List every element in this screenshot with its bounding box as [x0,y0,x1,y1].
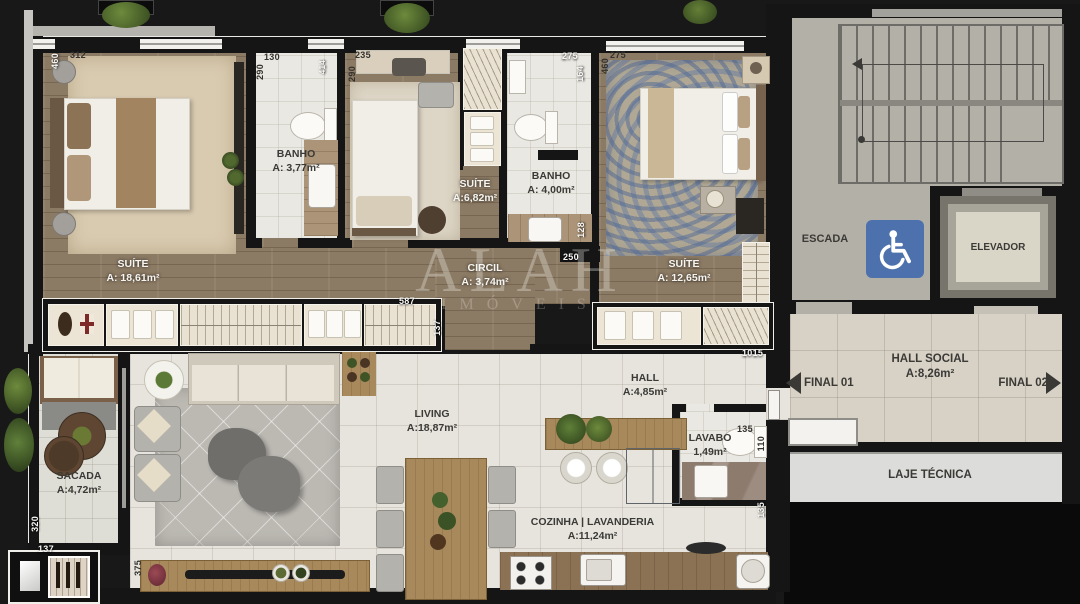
outside-left-strip [24,10,33,352]
suite3-label: SUÍTE A: 12,65m² [634,258,734,285]
dimension-label: 137 [38,544,54,554]
dimension-label: 135 [756,502,766,518]
final01-label: FINAL 01 [804,376,874,391]
room-name: ELEVADOR [956,241,1040,254]
escada-door-opening [796,302,852,314]
room-area: A: 3,74m² [435,276,535,290]
plant-icon [556,414,586,444]
final02-arrow-icon [1046,372,1061,394]
folded-clothes [133,310,152,339]
room-area: A: 3,77m² [256,162,336,176]
room-name: HALL SOCIAL [850,352,1010,367]
escada-label: ESCADA [790,232,860,246]
sofa-cushions [192,365,334,401]
room-name: SUÍTE [78,258,188,272]
laundry-tank-basin [741,559,765,583]
room-name: SACADA [40,470,118,484]
cooktop [510,556,552,590]
window [308,39,344,49]
plant-icon [4,418,34,472]
wardrobe-hanging [742,242,770,304]
room-area: A:6,82m² [438,192,512,206]
dimension-label: 110 [756,436,766,451]
plant-icon [4,368,32,414]
room-name: LIVING [385,408,479,422]
tech-box-glass [20,561,40,591]
bed-pillow [722,92,738,132]
cozinha-label: COZINHA | LAVANDERIA A:11,24m² [505,516,680,543]
dimension-label: 460 [50,53,60,69]
sink [694,465,728,498]
dining-decor [432,492,448,508]
folded-clothes [470,116,494,130]
window [33,39,55,49]
room-area: A:4,85m² [595,386,695,400]
folded-clothes [604,311,626,340]
folded-clothes [326,310,343,338]
room-area: A: 12,65m² [634,272,734,286]
wheelchair-icon [866,220,924,278]
entry-door-leaf [768,390,780,420]
bed-pillow [722,134,738,174]
dimension-label: 587 [399,296,415,306]
toilet-tank [324,108,337,142]
bed-headboard [756,85,766,181]
plant-icon [586,416,612,442]
kitchen-sink-basin [586,559,612,581]
room-area: A:11,24m² [505,530,680,544]
closet-hanging [364,304,436,346]
dimension-label: 375 [133,560,143,576]
toilet [514,114,548,141]
dimension-label: 275 [562,51,578,61]
folded-clothes [155,310,174,339]
folded-clothes [470,148,494,162]
room-name: BANHO [516,170,586,184]
wall [337,46,345,244]
floor-plan: SUÍTE A: 18,61m² BANHO A: 3,77m² SUÍTE A… [0,0,1080,604]
laje-tecnica-label: LAJE TÉCNICA [850,468,1010,483]
dimension-label: 1015 [742,348,763,358]
room-area: A:18,87m² [385,422,479,436]
bed-headboard [50,98,64,208]
dimension-label: 128 [576,222,586,238]
door-opening [686,404,714,412]
room-area: 1,49m² [682,446,738,460]
side-table-decor [347,358,357,368]
ac-condenser-bars [76,562,80,588]
toilet [290,112,326,140]
dining-decor [430,534,446,550]
final01-arrow-icon [786,372,801,394]
living-label: LIVING A:18,87m² [385,408,479,435]
lavabo-label: LAVABO 1,49m² [682,432,738,459]
dimension-label: 414 [318,60,327,74]
dimension-label: 135 [737,424,753,434]
ac-condenser-bars [66,562,70,588]
closet-decor [58,312,72,336]
circul-label: CIRCIL A: 3,74m² [435,262,535,289]
nightstand [52,212,76,236]
room-name: COZINHA | LAVANDERIA [505,516,680,530]
console-decor [148,564,166,586]
bed-pillow [67,103,91,149]
folded-clothes [632,311,654,340]
tech-box [8,550,100,604]
bed-pillow [356,196,412,226]
table-lamp-icon [706,190,724,208]
stair-start-dot [858,136,865,143]
room-name: SUÍTE [634,258,734,272]
final-label: FINAL 02 [978,376,1048,391]
side-table-decor [360,372,370,382]
folded-clothes [660,311,682,340]
fridge [626,448,680,504]
pouf [418,206,446,234]
final-label: FINAL 01 [804,376,874,391]
dining-decor [438,512,456,530]
staircase [838,24,1064,184]
plant-icon [683,0,717,24]
window [140,39,222,49]
dimension-label: 460 [600,58,610,74]
room-name: LAJE TÉCNICA [850,468,1010,483]
wall [780,313,790,365]
dimension-label: 137 [432,320,442,336]
final02-label: FINAL 02 [978,376,1048,391]
armchair [418,82,454,108]
tv [185,570,345,579]
stair-direction-arrow [852,58,862,70]
bed-headboard [352,228,416,236]
plant-icon [222,152,239,169]
wardrobe-hanging [463,48,502,110]
folded-clothes [111,310,130,339]
side-table-decor [360,358,370,368]
island-sink [560,452,592,484]
bed-pillow [738,96,750,128]
dining-chair [376,554,404,592]
console-plate [272,564,290,582]
outside-top-right-strip [872,9,1068,17]
folded-clothes [344,310,361,338]
stair-guide-line [862,64,1044,142]
sacada-label: SACADA A:4,72m² [40,470,118,497]
closet-bench [48,304,104,346]
room-area: A: 18,61m² [78,272,188,286]
desk-chair [392,58,426,76]
dimension-label: 290 [255,64,265,80]
dining-chair [376,510,404,548]
room-name: ESCADA [790,232,860,246]
below-laje-void [784,502,1080,604]
round-flower-table [144,360,184,400]
closet-hanging [703,307,769,345]
wall [591,46,599,308]
side-table-decor [347,372,357,382]
dimension-label: 320 [30,516,40,532]
suite1-label: SUÍTE A: 18,61m² [78,258,188,285]
room-name: CIRCIL [435,262,535,276]
counter-decor [686,542,726,554]
towel-shelf [509,60,526,94]
sink [528,217,562,242]
tv-panel [234,62,244,234]
room-name: BANHO [256,148,336,162]
banho2-label: BANHO A: 4,00m² [516,170,586,197]
circul-floor [435,238,535,350]
room-area: A:4,72m² [40,484,118,498]
plant-icon [102,2,150,28]
room-name: SUÍTE [438,178,512,192]
console-plate [292,564,310,582]
dimension-label: 250 [563,252,579,262]
folded-clothes [308,310,325,338]
dimension-label: 235 [355,50,371,60]
dining-chair [376,466,404,504]
window [606,41,744,51]
coffee-table [238,456,300,512]
bed-runner [116,98,156,208]
hall-social-door-panel [788,418,858,446]
dimension-label: 164 [575,66,585,82]
banho1-label: BANHO A: 3,77m² [256,148,336,175]
toilet-tank [545,111,558,144]
closet-hanging [180,304,302,346]
room-name: LAVABO [682,432,738,446]
door-opening [262,238,298,248]
plant-icon [227,169,244,186]
sacada-living-glass [122,368,126,508]
bed-runner [648,88,674,178]
dimension-label: 130 [264,52,280,62]
wall [538,150,578,160]
elevador-label: ELEVADOR [956,241,1040,254]
room-area: A: 4,00m² [516,184,586,198]
nightstand-knob [750,62,762,74]
dining-chair [488,466,516,504]
bed-pillow [67,155,91,201]
folded-clothes [470,132,494,146]
island-sink [596,452,628,484]
dimension-label: 312 [70,50,86,60]
room-name: HALL [595,372,695,386]
dimension-label: 290 [347,66,357,82]
dimension-label: 275 [610,50,626,60]
hall-label: HALL A:4,85m² [595,372,695,399]
tv-console [736,198,764,234]
closet-decor [80,314,94,334]
sacada-sofa-cushions [44,358,114,398]
suite2-label: SUÍTE A:6,82m² [438,178,512,205]
plant-icon [384,3,430,33]
elevator-top-rail [962,188,1042,196]
ac-condenser-bars [56,562,60,588]
bed-pillow [738,138,750,170]
